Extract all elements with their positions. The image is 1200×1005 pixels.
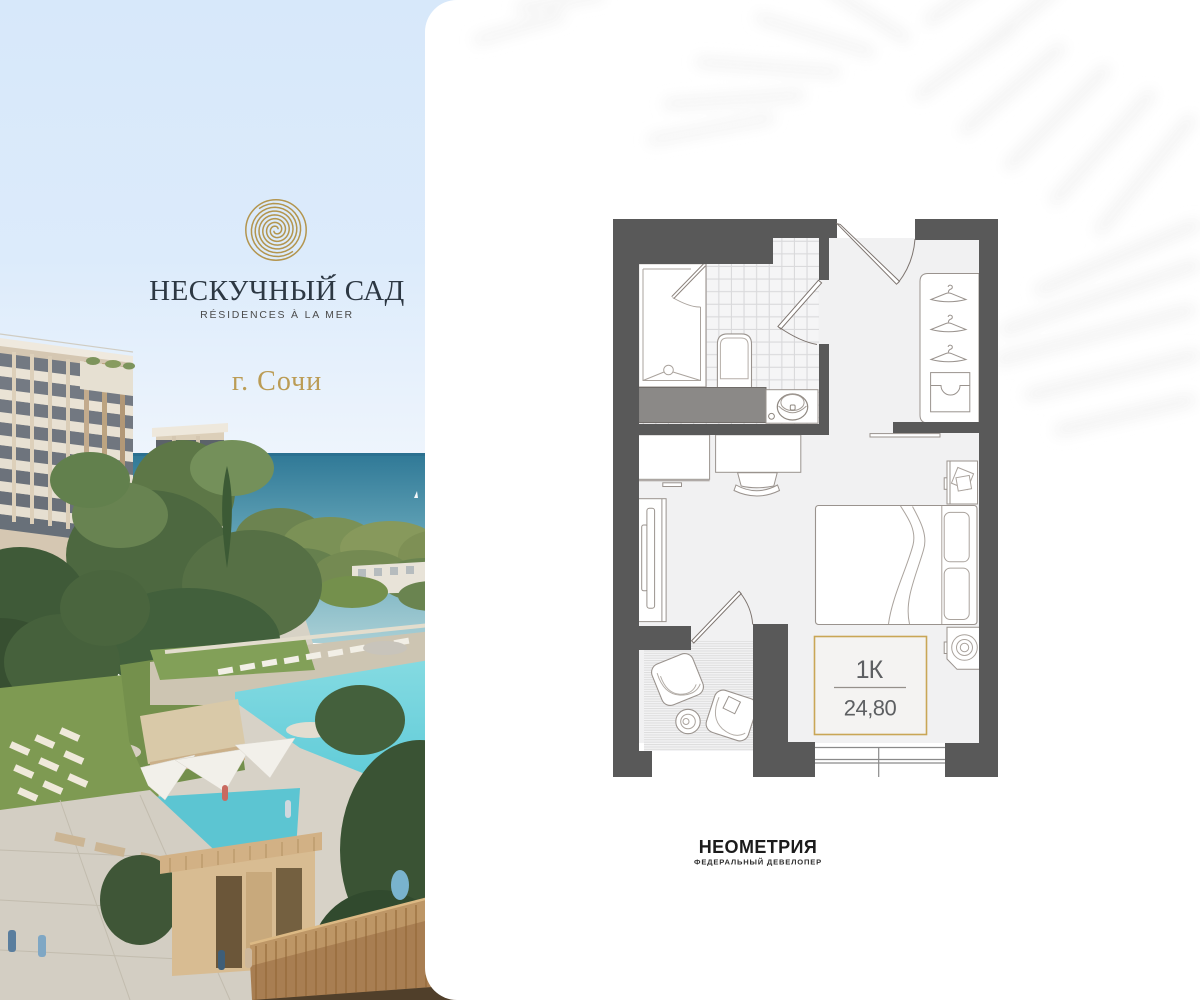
svg-text:ФЕДЕРАЛЬНЫЙ ДЕВЕЛОПЕР: ФЕДЕРАЛЬНЫЙ ДЕВЕЛОПЕР [694, 858, 822, 867]
svg-text:1К: 1К [856, 656, 884, 684]
svg-text:НЕОМЕТРИЯ: НЕОМЕТРИЯ [699, 837, 817, 857]
svg-text:24,80: 24,80 [844, 696, 897, 721]
